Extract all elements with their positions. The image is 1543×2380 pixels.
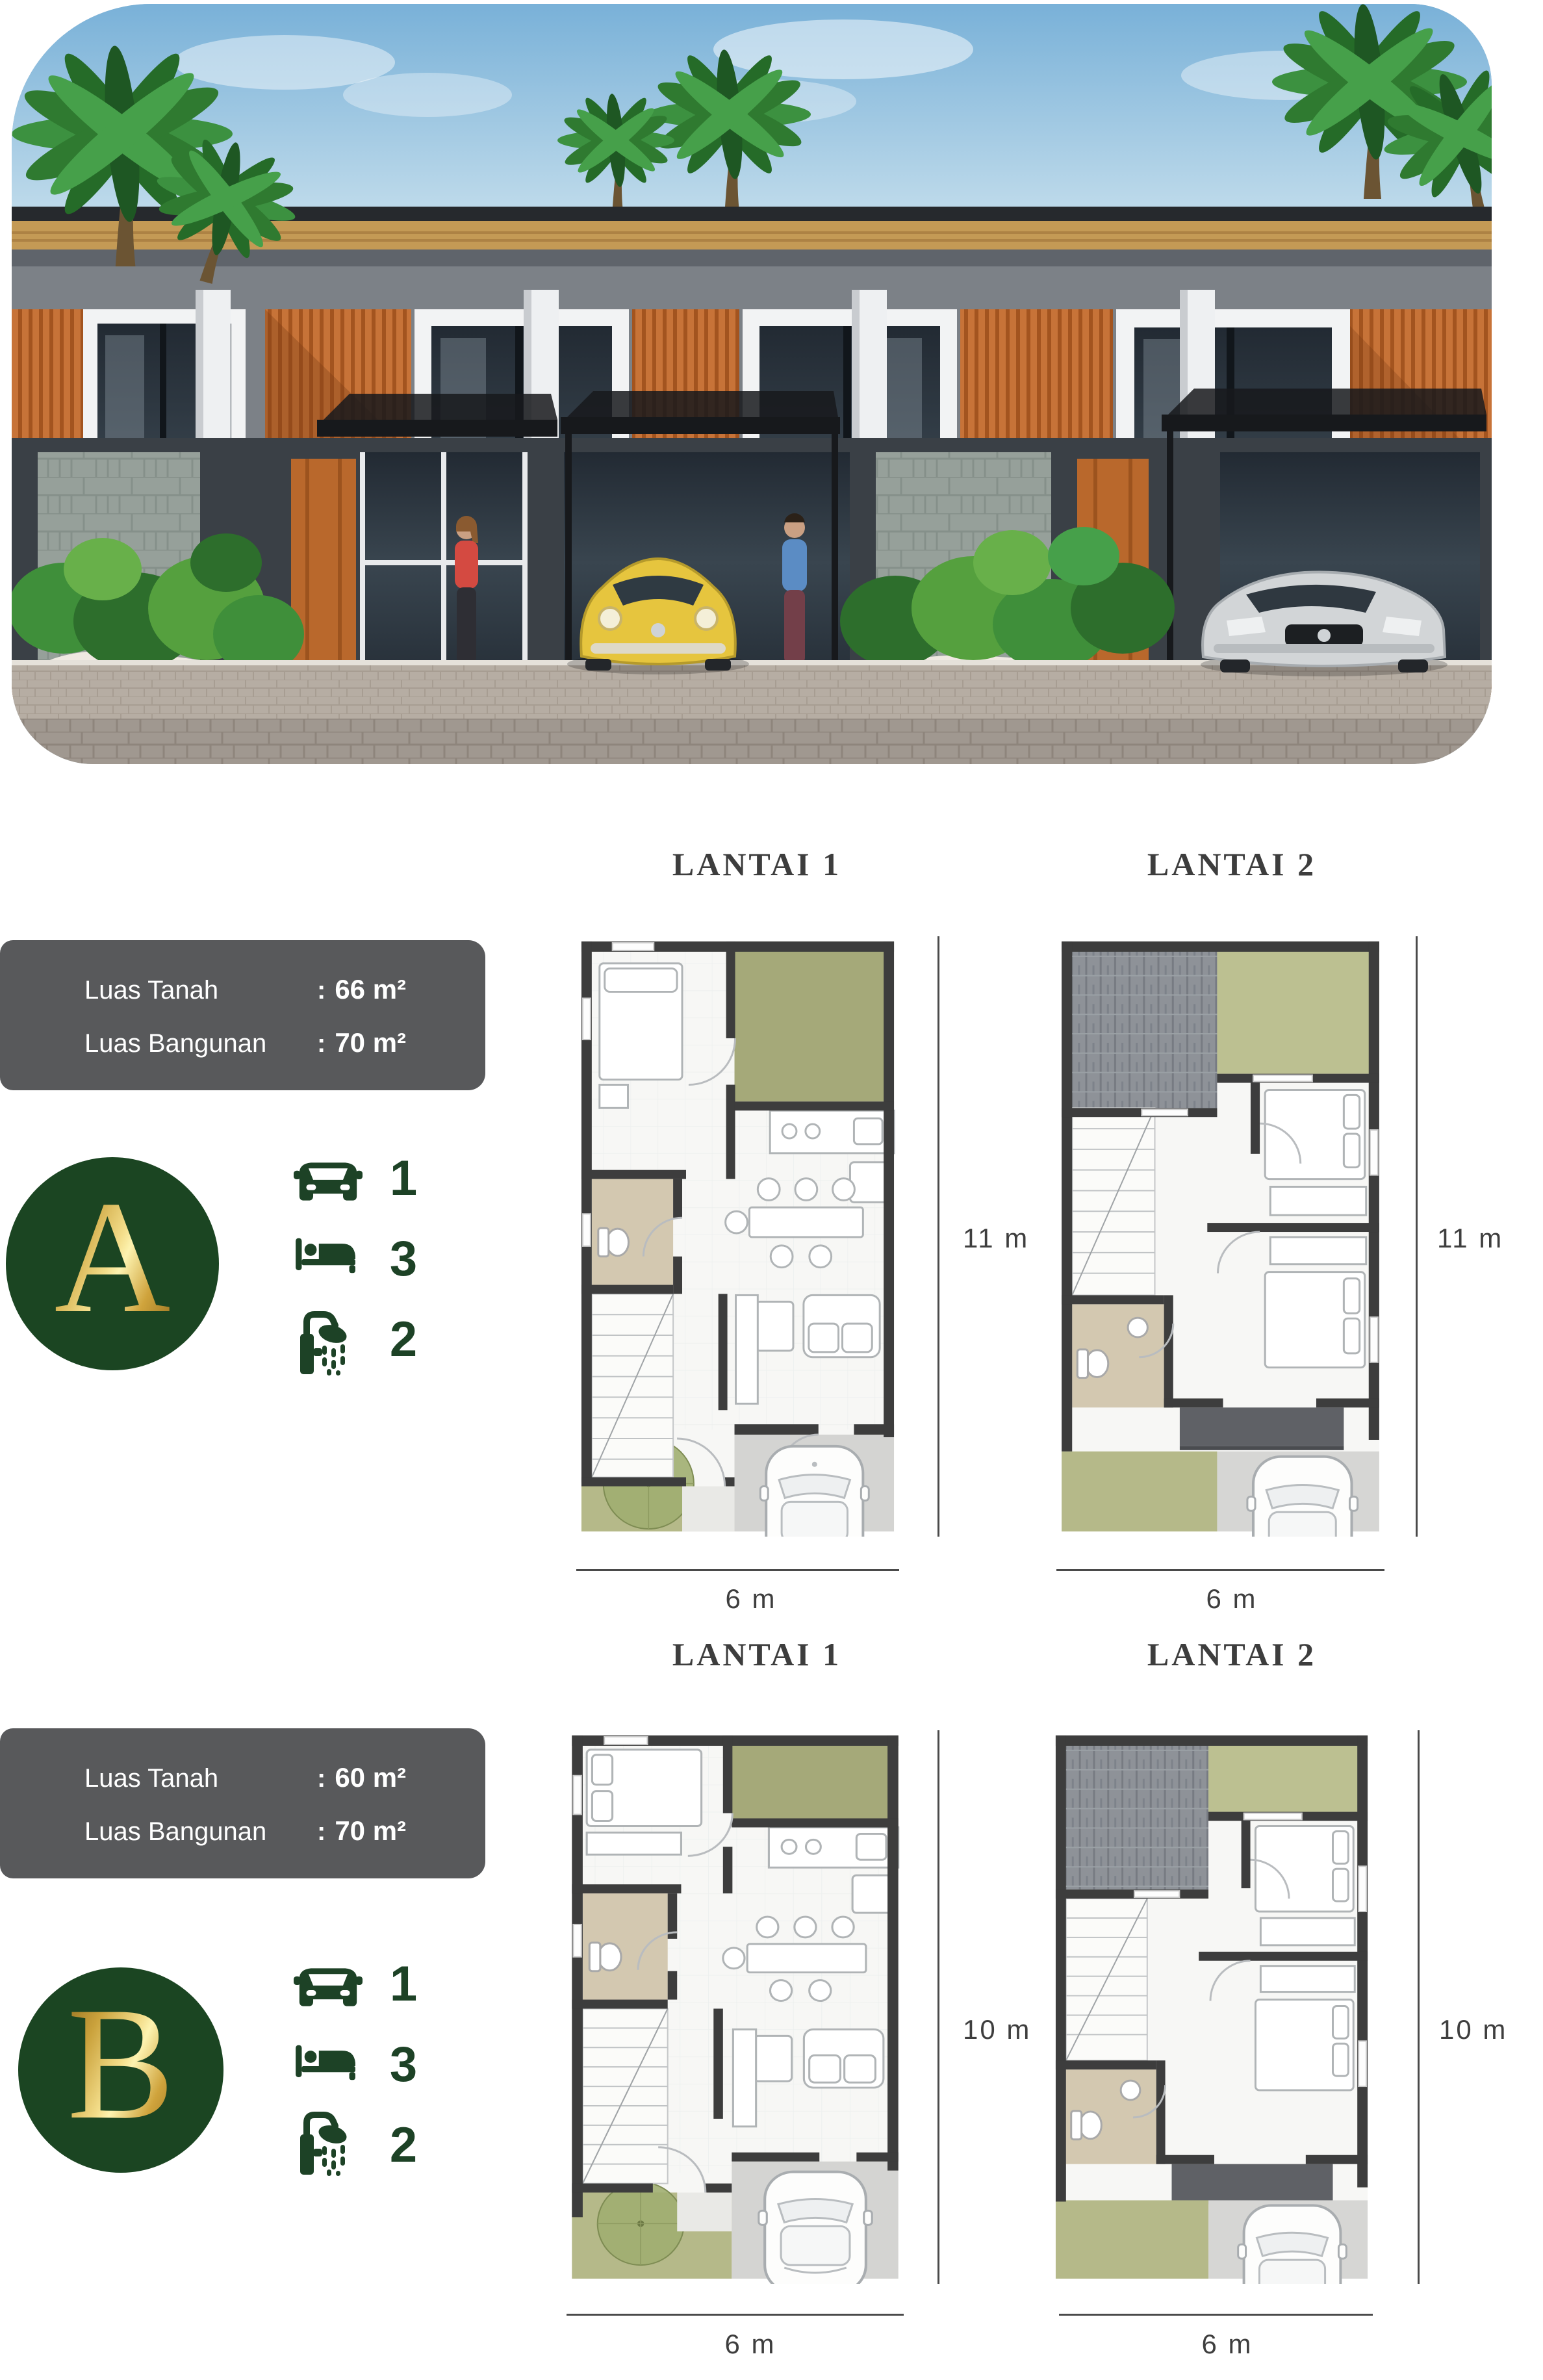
height-dimension-line — [937, 1730, 939, 2284]
land-area-label: Luas Tanah — [84, 975, 317, 1006]
car-top-view — [1247, 1457, 1358, 1537]
hero-photo — [12, 4, 1492, 764]
height-dimension-line — [937, 936, 939, 1537]
car-top-view — [759, 2172, 872, 2284]
colon: : — [317, 1816, 325, 1847]
type-a-letter: A — [54, 1177, 170, 1351]
carport-count: 1 — [379, 1151, 427, 1206]
type-a-badge: A — [6, 1157, 219, 1370]
width-dimension-label: 6 m — [598, 1583, 904, 1615]
building-area-label: Luas Bangunan — [84, 1816, 317, 1847]
floor-plan-b-lantai2 — [1051, 1730, 1373, 2284]
townhouse-render — [12, 4, 1492, 764]
land-area-row: Luas Tanah : 66 m² — [84, 974, 466, 1006]
height-dimension-line — [1418, 1730, 1420, 2284]
width-dimension-line — [1059, 2314, 1373, 2316]
shower-icon — [299, 2110, 350, 2177]
height-dimension-line — [1416, 936, 1418, 1537]
floor-plan-b-lantai1 — [567, 1730, 904, 2284]
bedroom-count: 3 — [379, 2038, 427, 2092]
type-a-info-box: Luas Tanah : 66 m² Luas Bangunan : 70 m² — [0, 940, 485, 1090]
type-b-letter: B — [67, 1983, 174, 2157]
bathroom-count: 2 — [379, 1312, 427, 1367]
bedroom-count: 3 — [379, 1232, 427, 1286]
pavement — [12, 660, 1492, 764]
floor-title-a-lantai2: LANTAI 2 — [1037, 845, 1427, 883]
car-icon — [294, 1155, 363, 1203]
height-dimension-label: 11 m — [1437, 1223, 1535, 1254]
floor-title-b-lantai2: LANTAI 2 — [1037, 1635, 1427, 1673]
floor-plan-a-lantai1 — [576, 936, 899, 1537]
floor-plan-a-lantai2 — [1056, 936, 1384, 1537]
bed-icon — [292, 2041, 359, 2083]
height-dimension-label: 10 m — [1439, 2014, 1543, 2045]
width-dimension-label: 6 m — [1075, 2329, 1380, 2360]
brochure-page: LANTAI 1 LANTAI 2 Luas Tanah : 66 m² Lua… — [0, 0, 1543, 2380]
building-area-row: Luas Bangunan : 70 m² — [84, 1027, 466, 1059]
car-top-view — [1238, 2205, 1347, 2284]
width-dimension-label: 6 m — [1079, 1583, 1384, 1615]
width-dimension-line — [1056, 1569, 1384, 1571]
type-b-badge: B — [18, 1967, 223, 2173]
land-area-value: 60 m² — [335, 1762, 406, 1793]
building-area-value: 70 m² — [335, 1027, 406, 1058]
colon: : — [317, 1028, 325, 1059]
width-dimension-label: 6 m — [598, 2329, 903, 2360]
type-b-info-box: Luas Tanah : 60 m² Luas Bangunan : 70 m² — [0, 1728, 485, 1878]
carport-count: 1 — [379, 1957, 427, 2012]
height-dimension-label: 11 m — [963, 1223, 1060, 1254]
land-area-label: Luas Tanah — [84, 1763, 317, 1794]
building-area-row: Luas Bangunan : 70 m² — [84, 1815, 466, 1847]
colon: : — [317, 975, 325, 1006]
car-icon — [294, 1961, 363, 2009]
bed-icon — [292, 1235, 359, 1276]
car-top-view — [760, 1446, 869, 1537]
width-dimension-line — [567, 2314, 904, 2316]
floor-title-a-lantai1: LANTAI 1 — [562, 845, 952, 883]
building-area-value: 70 m² — [335, 1815, 406, 1847]
width-dimension-line — [576, 1569, 899, 1571]
land-area-value: 66 m² — [335, 974, 406, 1005]
colon: : — [317, 1763, 325, 1794]
floor-title-b-lantai1: LANTAI 1 — [562, 1635, 952, 1673]
land-area-row: Luas Tanah : 60 m² — [84, 1762, 466, 1794]
building-area-label: Luas Bangunan — [84, 1028, 317, 1059]
shower-icon — [299, 1310, 350, 1376]
height-dimension-label: 10 m — [963, 2014, 1067, 2045]
bathroom-count: 2 — [379, 2118, 427, 2173]
